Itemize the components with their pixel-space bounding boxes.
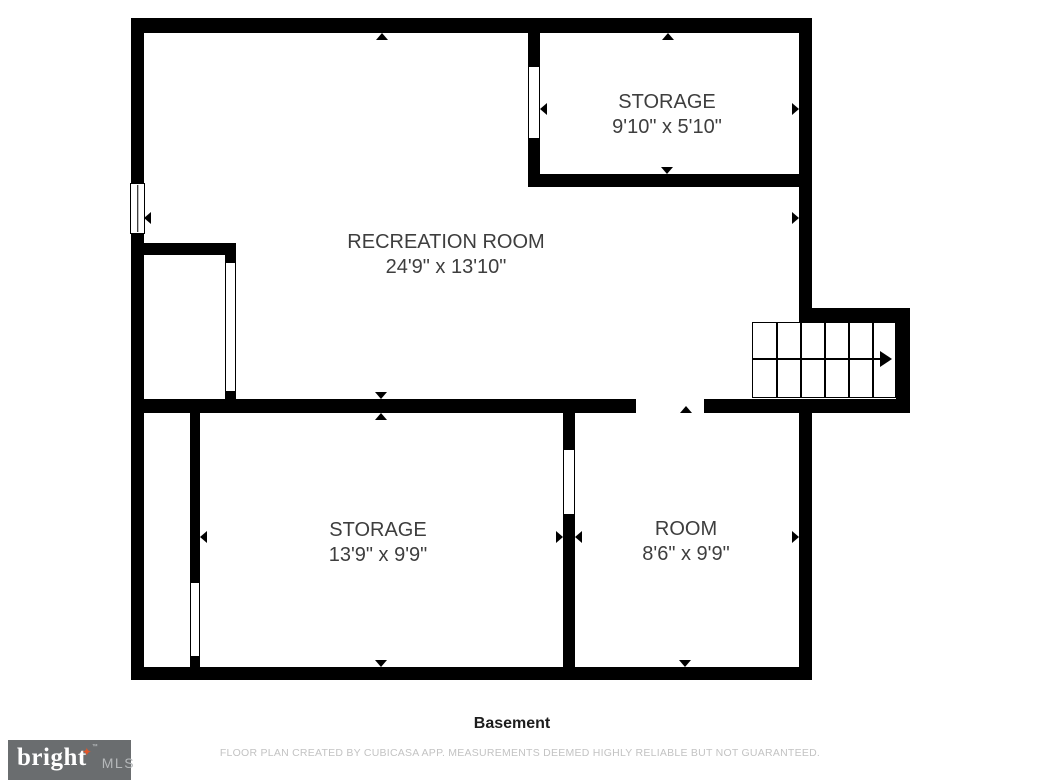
wall-stair-top <box>799 308 910 322</box>
stair-tread-line <box>824 323 826 397</box>
wall-room-divider-upper <box>563 413 575 450</box>
measure-arrow-up-icon <box>662 33 674 40</box>
door-opening-room <box>563 450 575 514</box>
room-label-room: ROOM 8'6" x 9'9" <box>642 517 729 567</box>
wall-outer-left-lower <box>131 234 144 667</box>
room-dimensions: 13'9" x 9'9" <box>329 543 428 568</box>
room-name: STORAGE <box>329 518 428 543</box>
room-label-recreation-room: RECREATION ROOM 24'9" x 13'10" <box>347 230 544 280</box>
wall-utility-right-stub-top <box>225 255 236 263</box>
logo-star-icon: ✦ <box>82 745 92 759</box>
stair-tread-line <box>800 323 802 397</box>
measure-arrow-left-icon <box>200 531 207 543</box>
measure-arrow-down-icon <box>375 392 387 399</box>
measure-arrow-down-icon <box>661 167 673 174</box>
door-opening-storage1 <box>528 67 540 138</box>
wall-utility-top <box>131 243 236 255</box>
door-opening-storage2 <box>190 583 200 656</box>
measure-arrow-right-icon <box>792 212 799 224</box>
measure-arrow-down-icon <box>375 660 387 667</box>
stair-tread-line <box>776 323 778 397</box>
room-label-storage-top: STORAGE 9'10" x 5'10" <box>612 90 722 140</box>
measure-arrow-left-icon <box>540 103 547 115</box>
room-dimensions: 8'6" x 9'9" <box>642 542 729 567</box>
wall-stair-bottom <box>704 399 910 413</box>
measure-arrow-right-icon <box>556 531 563 543</box>
wall-storage2-left-upper <box>190 413 200 583</box>
room-label-storage-bottom: STORAGE 13'9" x 9'9" <box>329 518 428 568</box>
measure-arrow-left-icon <box>144 212 151 224</box>
stair-tread-line <box>872 323 874 397</box>
wall-outer-left-upper <box>131 33 144 183</box>
wall-room-divider-lower <box>563 514 575 667</box>
bright-mls-logo: bright ✦ ™ MLS <box>8 740 131 780</box>
measure-arrow-right-icon <box>792 103 799 115</box>
measure-arrow-left-icon <box>575 531 582 543</box>
wall-storage1-left-upper <box>528 33 540 67</box>
stair-direction-line <box>753 358 883 360</box>
wall-storage2-left-stub <box>190 656 200 667</box>
floor-plan-page: STORAGE 9'10" x 5'10" RECREATION ROOM 24… <box>0 0 1040 780</box>
stair-direction-arrow-icon <box>880 351 892 367</box>
logo-trademark: ™ <box>92 744 98 750</box>
wall-outer-right-upper <box>799 33 812 308</box>
door-opening-utility <box>225 263 236 391</box>
measure-arrow-up-icon <box>376 33 388 40</box>
window-pane-line <box>137 185 139 232</box>
disclaimer-text: FLOOR PLAN CREATED BY CUBICASA APP. MEAS… <box>220 747 820 759</box>
room-name: STORAGE <box>612 90 722 115</box>
logo-suffix-text: MLS <box>102 755 135 771</box>
stair-tread-line <box>848 323 850 397</box>
wall-stair-right <box>896 308 910 413</box>
measure-arrow-up-icon <box>375 413 387 420</box>
room-name: ROOM <box>642 517 729 542</box>
staircase <box>752 322 896 398</box>
measure-arrow-right-icon <box>792 531 799 543</box>
room-name: RECREATION ROOM <box>347 230 544 255</box>
wall-storage1-left-lower <box>528 138 540 174</box>
floor-title: Basement <box>474 715 550 733</box>
wall-storage1-bottom <box>528 174 812 187</box>
wall-outer-top <box>131 18 812 33</box>
wall-outer-bottom <box>131 667 812 680</box>
window <box>130 183 145 234</box>
measure-arrow-up-icon <box>680 406 692 413</box>
measure-arrow-down-icon <box>679 660 691 667</box>
wall-outer-right-lower <box>799 413 812 667</box>
wall-middle <box>131 399 636 413</box>
room-dimensions: 9'10" x 5'10" <box>612 115 722 140</box>
room-dimensions: 24'9" x 13'10" <box>347 255 544 280</box>
logo-brand-text: bright <box>17 745 87 771</box>
